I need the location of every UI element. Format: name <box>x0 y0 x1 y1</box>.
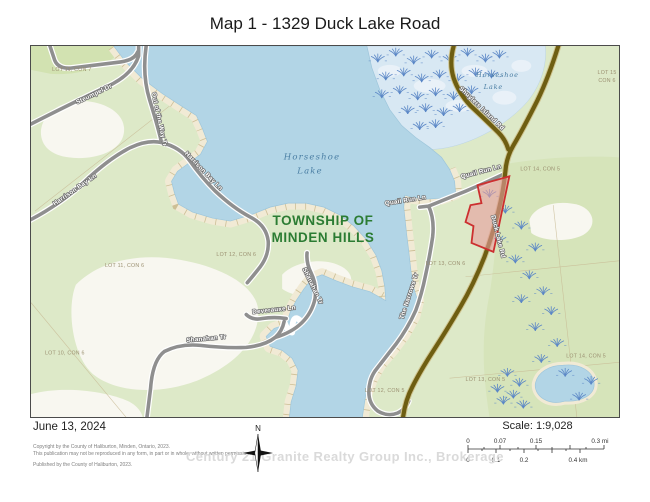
lot-label: LOT 14, CON 5 <box>566 353 606 359</box>
map-date: June 13, 2024 <box>33 421 106 433</box>
marsh-lake-label-line1: Horseshoe <box>475 71 519 79</box>
lot-label: LOT 15 <box>598 70 617 76</box>
brokerage-watermark: Century 21 Granite Realty Group Inc., Br… <box>186 449 496 464</box>
compass-star-icon <box>243 434 273 472</box>
scale-mi-0: 0 <box>466 438 470 445</box>
scale-km-2: 0.2 <box>520 457 529 464</box>
north-arrow: N <box>238 422 278 485</box>
scale-km-3: 0.4 km <box>569 457 588 464</box>
lot-label: LOT 13, CON 5 <box>466 377 506 383</box>
scale-ratio-label: Scale: 1:9,028 <box>455 420 620 432</box>
scale-mi-1: 0.07 <box>494 438 507 445</box>
map-svg: LOT 11, CON 7 LOT 11, CON 6 LOT 10, CON … <box>31 46 619 417</box>
lot-label: LOT 11, CON 7 <box>52 67 91 73</box>
lot-label: LOT 11, CON 6 <box>105 263 144 269</box>
lot-label: LOT 12, CON 5 <box>365 388 405 394</box>
scale-mi-3: 0.3 mi <box>591 438 608 445</box>
marsh-lake-label-line2: Lake <box>483 83 503 91</box>
township-label: TOWNSHIP OF MINDEN HILLS <box>272 213 375 245</box>
lot-label: LOT 10, CON 6 <box>45 350 85 356</box>
horseshoe-lake-label-line2: Lake <box>296 165 323 175</box>
page-title: Map 1 - 1329 Duck Lake Road <box>0 14 650 34</box>
north-label: N <box>255 424 261 433</box>
horseshoe-lake-label-line1: Horseshoe <box>283 151 341 161</box>
lot-label: LOT 12, CON 6 <box>216 252 256 258</box>
lot-label: LOT 13, CON 6 <box>426 261 466 267</box>
scale-mi-2: 0.15 <box>530 438 543 445</box>
lot-label: LOT 14, CON 5 <box>520 166 560 172</box>
lot-label: CON 6 <box>598 78 615 84</box>
small-lake <box>535 365 594 402</box>
svg-text:MINDEN HILLS: MINDEN HILLS <box>272 230 375 245</box>
svg-text:TOWNSHIP OF: TOWNSHIP OF <box>273 213 374 228</box>
map-canvas[interactable]: LOT 11, CON 7 LOT 11, CON 6 LOT 10, CON … <box>30 45 620 418</box>
